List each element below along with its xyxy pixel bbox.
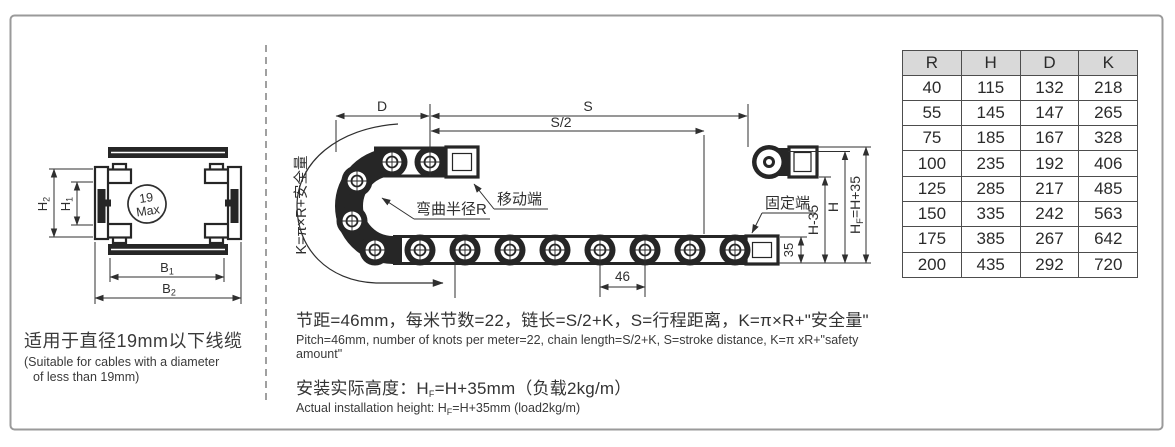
cell: 242	[1020, 201, 1079, 226]
dim-b1-label: B1	[160, 260, 174, 277]
cell: 267	[1020, 227, 1079, 252]
chain-link	[450, 235, 481, 266]
chain-link	[675, 235, 706, 266]
height-note-en-post: =H+35mm (load2kg/m)	[452, 401, 580, 415]
dim-h-label: H	[825, 202, 841, 212]
chain-link	[405, 235, 436, 266]
moving-end-label: 移动端	[497, 191, 542, 208]
cell: 100	[903, 151, 962, 176]
cell: 115	[961, 75, 1020, 100]
cell: 285	[961, 176, 1020, 201]
dim-35-label: 35	[781, 243, 796, 257]
k-formula-label: K=π×R+安全量	[292, 155, 310, 254]
height-note-en-pre: Actual installation height: H	[296, 401, 447, 415]
cell: 292	[1020, 252, 1079, 277]
pitch-note-en: Pitch=46mm, number of knots per meter=22…	[296, 333, 906, 361]
caption-en-line1: (Suitable for cables with a diameter	[24, 355, 276, 370]
cell: 55	[903, 100, 962, 125]
cell: 265	[1079, 100, 1138, 125]
cell: 406	[1079, 151, 1138, 176]
notes-block: 节距=46mm，每米节数=22，链长=S/2+K，S=行程距离，K=π×R+"安…	[296, 306, 906, 417]
cell: 192	[1020, 151, 1079, 176]
cell: 385	[961, 227, 1020, 252]
chain-link	[720, 235, 751, 266]
height-note-cn-post: =H+35mm（负载2kg/m）	[435, 379, 632, 398]
cell: 175	[903, 227, 962, 252]
chain-link	[540, 235, 571, 266]
cell: 328	[1079, 126, 1138, 151]
cell: 150	[903, 201, 962, 226]
chain-link	[342, 166, 373, 197]
cell: 435	[961, 252, 1020, 277]
dim-46-label: 46	[615, 269, 630, 284]
cell: 335	[961, 201, 1020, 226]
chain-link	[360, 235, 391, 266]
dim-h1-label: H1	[58, 197, 75, 211]
cell: 125	[903, 176, 962, 201]
chain-link	[495, 235, 526, 266]
spec-table: R H D K 40115132218 55145147265 75185167…	[902, 50, 1138, 278]
fixed-end-label: 固定端	[765, 195, 810, 212]
cell: 147	[1020, 100, 1079, 125]
table-row: 55145147265	[903, 100, 1138, 125]
cell: 217	[1020, 176, 1079, 201]
cross-section-view: 19 Max H2 H1 B1 B2	[35, 147, 241, 304]
elevated-end-assembly	[752, 145, 817, 179]
height-note-en: Actual installation height: HF=H+35mm (l…	[296, 401, 906, 417]
table-row: 100235192406	[903, 151, 1138, 176]
col-header-d: D	[1020, 51, 1079, 76]
caption-en: (Suitable for cables with a diameter of …	[24, 355, 276, 385]
cell: 167	[1020, 126, 1079, 151]
table-row: 200435292720	[903, 252, 1138, 277]
cell: 75	[903, 126, 962, 151]
moving-end-block	[446, 147, 478, 177]
col-header-h: H	[961, 51, 1020, 76]
bend-radius-callout: 弯曲半径R	[382, 198, 490, 219]
side-view-drag-chain: D S S/2 46 35 H-35 H HF=H+35 K=π×R+安全量 弯…	[292, 98, 871, 298]
right-side-bracket	[205, 164, 241, 243]
cell: 218	[1079, 75, 1138, 100]
dim-d-label: D	[377, 98, 387, 114]
cell: 185	[961, 126, 1020, 151]
height-note-cn: 安装实际高度：HF=H+35mm（负载2kg/m）	[296, 374, 906, 399]
top-cover-bar	[108, 147, 228, 158]
caption-cn: 适用于直径19mm以下线缆	[24, 327, 276, 353]
cell: 40	[903, 75, 962, 100]
table-row: 175385267642	[903, 227, 1138, 252]
cell: 642	[1079, 227, 1138, 252]
pitch-note-cn: 节距=46mm，每米节数=22，链长=S/2+K，S=行程距离，K=π×R+"安…	[296, 306, 906, 331]
dim-s2-label: S/2	[550, 114, 571, 130]
height-note-cn-pre: 安装实际高度：H	[296, 379, 429, 398]
cell: 563	[1079, 201, 1138, 226]
cell: 720	[1079, 252, 1138, 277]
dim-s-label: S	[583, 98, 592, 114]
spec-table-header-row: R H D K	[903, 51, 1138, 76]
dim-h2-label: H2	[35, 197, 52, 211]
fixed-end-block	[746, 236, 778, 264]
cell: 235	[961, 151, 1020, 176]
col-header-r: R	[903, 51, 962, 76]
left-side-bracket	[95, 164, 131, 243]
caption-en-line2: of less than 19mm)	[24, 370, 276, 385]
cell: 200	[903, 252, 962, 277]
left-caption: 适用于直径19mm以下线缆 (Suitable for cables with …	[24, 327, 276, 385]
chain-link	[377, 147, 408, 178]
dimension-h1	[71, 182, 93, 225]
max-cable-diameter-circle: 19 Max	[126, 183, 169, 226]
bottom-cover-bar	[108, 244, 228, 255]
dim-b2-label: B2	[162, 281, 176, 298]
table-row: 40115132218	[903, 75, 1138, 100]
table-row: 125285217485	[903, 176, 1138, 201]
dim-hf-label: HF=H+35	[847, 176, 866, 234]
drag-chain-spec-sheet: 19 Max H2 H1 B1 B2	[0, 0, 1175, 447]
col-header-k: K	[1079, 51, 1138, 76]
table-row: 75185167328	[903, 126, 1138, 151]
cell: 132	[1020, 75, 1079, 100]
cell: 145	[961, 100, 1020, 125]
cell: 485	[1079, 176, 1138, 201]
chain-link	[337, 206, 368, 237]
bend-radius-label: 弯曲半径R	[416, 201, 487, 218]
table-row: 150335242563	[903, 201, 1138, 226]
